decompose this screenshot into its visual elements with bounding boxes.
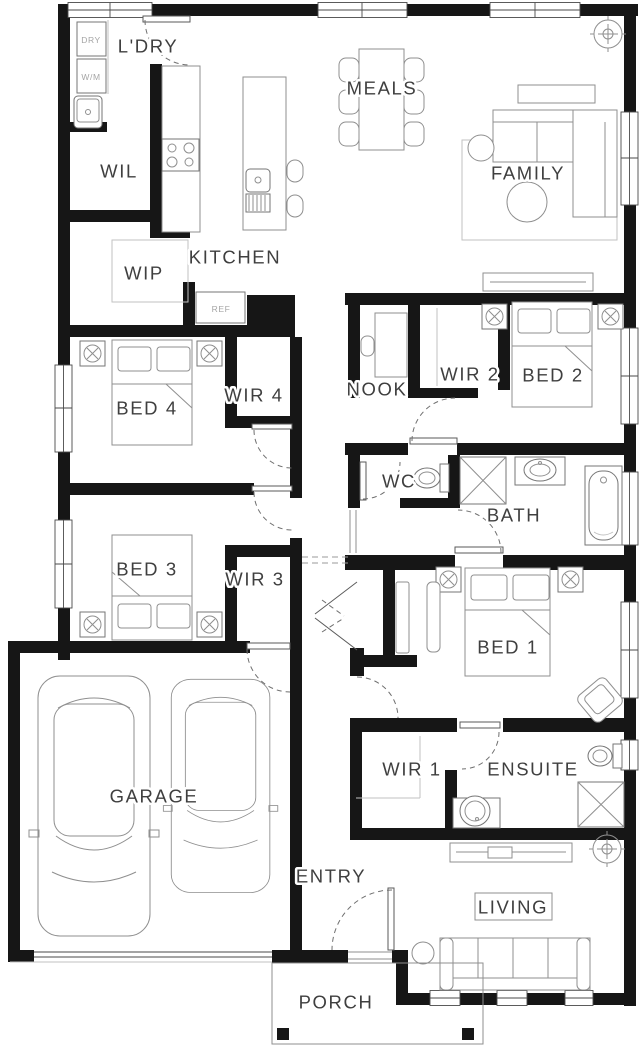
- bed2-hall-door: [410, 398, 457, 444]
- bedside-light-icon: [80, 341, 105, 366]
- linen-bifold-doors: [315, 510, 357, 650]
- ceiling-fan-icon: [590, 16, 626, 52]
- front-door: [332, 888, 394, 959]
- window-ensuite: [621, 740, 638, 770]
- room-label-garage: GARAGE: [110, 786, 199, 807]
- nook-furniture: [361, 308, 437, 386]
- armchair: [575, 675, 624, 724]
- dining-table: [359, 49, 404, 150]
- sofa: [440, 938, 590, 990]
- window-bed3: [55, 520, 72, 608]
- shower-icon: [578, 782, 624, 827]
- porch-post: [277, 1028, 289, 1040]
- room-label-bed4: BED 4: [116, 398, 177, 419]
- side-table: [412, 942, 434, 964]
- bed3-furniture: [80, 535, 222, 640]
- bedside-light-icon: [598, 304, 623, 329]
- window-family-top: [490, 3, 580, 18]
- room-label-living: LIVING: [478, 897, 548, 918]
- kitchen-fixtures: [112, 66, 303, 323]
- master-suite-door: [357, 677, 398, 718]
- toilet-icon: [613, 744, 622, 768]
- floor-plan-svg: L'DRYWILMEALSFAMILYKITCHENWIPNOOKWIR 2BE…: [0, 0, 640, 1048]
- toilet-icon: [440, 464, 449, 492]
- garage-door: [10, 952, 272, 962]
- dresser: [427, 582, 440, 652]
- window-bath: [621, 472, 638, 545]
- window-laundry: [68, 3, 152, 18]
- room-label-nook: NOOK: [347, 379, 408, 400]
- room-label-wir1: WIR 1: [382, 759, 441, 780]
- stool: [287, 160, 303, 182]
- bed4-door: [252, 424, 292, 468]
- appliance-label-dryer: DRY: [81, 35, 101, 45]
- window-living-3: [565, 991, 593, 1006]
- shower-icon: [460, 457, 506, 504]
- room-label-family: FAMILY: [491, 163, 565, 184]
- room-label-wil: WIL: [100, 161, 138, 182]
- floor-plan: L'DRYWILMEALSFAMILYKITCHENWIPNOOKWIR 2BE…: [0, 0, 640, 1048]
- console: [518, 85, 595, 103]
- wc-fixtures: [414, 464, 449, 492]
- room-label-wc: WC: [382, 471, 416, 492]
- window-bed4: [55, 365, 72, 452]
- bedside-light-icon: [80, 612, 105, 637]
- room-label-ldry: L'DRY: [118, 36, 179, 57]
- room-label-ensuite: ENSUITE: [487, 759, 578, 780]
- room-label-entry: ENTRY: [296, 866, 366, 887]
- room-label-bed1: BED 1: [477, 637, 538, 658]
- bed3-door: [252, 486, 292, 530]
- window-bed2: [621, 328, 638, 424]
- window-bed1: [621, 602, 638, 698]
- room-label-wir3: WIR 3: [225, 569, 284, 590]
- bedside-light-icon: [558, 567, 583, 592]
- robe: [396, 582, 409, 653]
- window-family-right: [621, 112, 638, 205]
- bed4-furniture: [80, 340, 222, 445]
- window-living-2: [497, 991, 527, 1006]
- room-label-wip: WIP: [124, 263, 164, 284]
- room-label-bed2: BED 2: [522, 365, 583, 386]
- room-label-porch: PORCH: [299, 992, 374, 1013]
- room-label-wir4: WIR 4: [224, 385, 283, 406]
- desk: [375, 313, 407, 377]
- room-label-meals: MEALS: [347, 78, 418, 99]
- garage-entry-door: [247, 643, 290, 692]
- bedside-light-icon: [197, 612, 222, 637]
- bedside-light-icon: [482, 304, 507, 329]
- bedside-light-icon: [197, 341, 222, 366]
- ottoman: [507, 182, 547, 222]
- room-label-kitchen: KITCHEN: [189, 247, 281, 268]
- meals-furniture: [339, 49, 424, 150]
- family-furniture: [462, 16, 626, 291]
- stool: [287, 195, 303, 217]
- appliance-label-fridge: REF: [212, 304, 231, 314]
- bathtub-icon: [585, 466, 622, 545]
- porch-post: [462, 1028, 474, 1040]
- hall-bulkhead-line: [302, 557, 348, 563]
- appliance-label-washer: W/M: [81, 72, 100, 82]
- window-living-1: [430, 991, 460, 1006]
- ensuite-fixtures: [356, 736, 624, 828]
- room-label-bed3: BED 3: [116, 559, 177, 580]
- window-meals: [318, 3, 407, 18]
- room-label-bath: BATH: [487, 505, 541, 526]
- room-label-wir2: WIR 2: [440, 364, 499, 385]
- bath-fixtures: [460, 457, 622, 545]
- desk-chair: [361, 336, 374, 356]
